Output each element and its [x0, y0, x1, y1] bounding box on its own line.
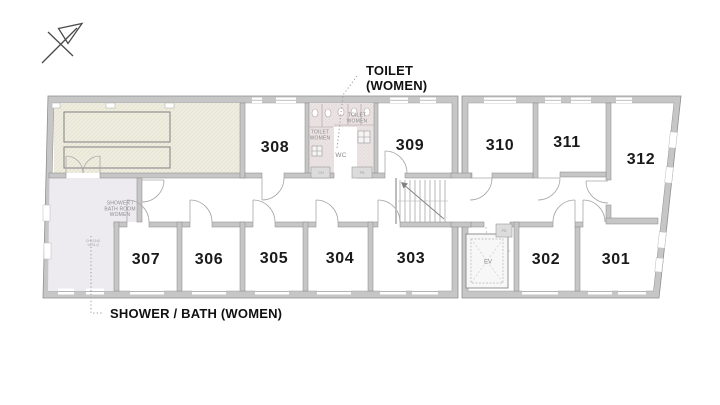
- toilet-women-callout: TOILET (WOMEN): [366, 64, 427, 93]
- room-309-label: 309: [396, 137, 425, 155]
- shower-room-label: SHOWER / BATH ROOM WOMEN: [104, 200, 135, 217]
- room-311-label: 311: [553, 134, 581, 152]
- room-308-label: 308: [261, 139, 290, 157]
- floor-plan-page: TOILET (WOMEN) SHOWER / BATH (WOMEN) 308…: [0, 0, 720, 405]
- duct-right-label: PS: [360, 170, 365, 174]
- north-arrow-icon: [42, 24, 82, 64]
- room-307-label: 307: [132, 251, 161, 269]
- room-302-label: 302: [532, 251, 561, 269]
- elevator-label: EV: [484, 259, 492, 266]
- wing-junction: [451, 173, 471, 227]
- shower-room-note: CH=2140 14.31㎡: [86, 239, 100, 247]
- room-305-label: 305: [260, 250, 289, 268]
- elevator-shaft: [466, 224, 512, 288]
- toilet-room-left-label: TOILET WOMEN: [310, 129, 331, 141]
- shower-bath-women-callout: SHOWER / BATH (WOMEN): [110, 307, 282, 322]
- toilet-callout-line1: TOILET: [366, 64, 427, 79]
- room-312-label: 312: [627, 151, 656, 169]
- room-304-label: 304: [326, 250, 355, 268]
- toilet-room-right-label: TOILET WOMEN: [347, 112, 368, 124]
- toilet-callout-line2: (WOMEN): [366, 79, 427, 94]
- duct-left-label: CH: [318, 170, 323, 174]
- duct-ev-label: PS: [502, 228, 507, 232]
- room-301-label: 301: [602, 251, 631, 269]
- room-303-label: 303: [397, 250, 426, 268]
- room-306-label: 306: [195, 251, 224, 269]
- lounge-tables: [52, 103, 174, 168]
- wc-label: WC: [335, 151, 346, 158]
- room-310-label: 310: [486, 137, 515, 155]
